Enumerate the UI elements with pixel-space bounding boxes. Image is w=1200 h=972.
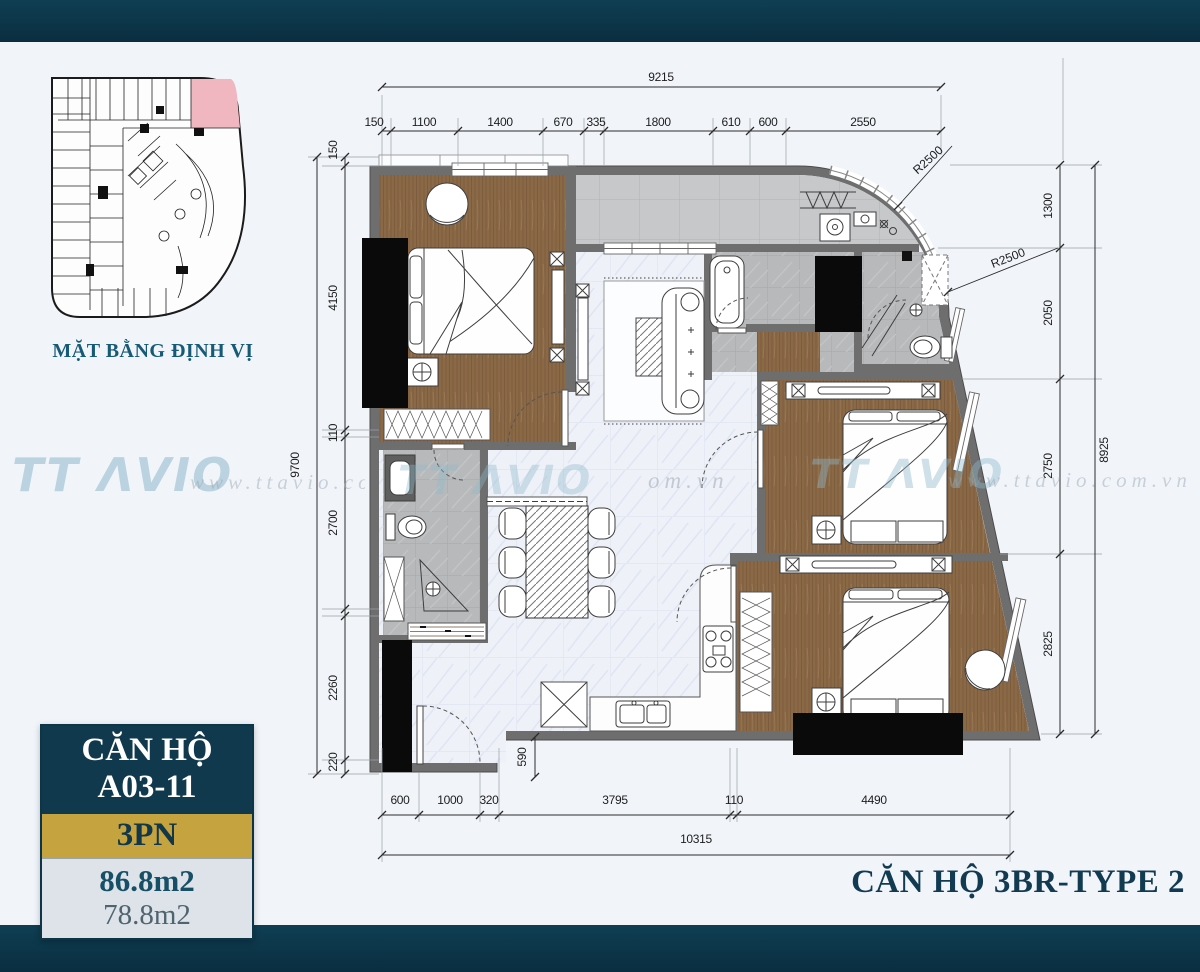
dim-top-total: 9215 xyxy=(648,70,674,84)
dining-table xyxy=(526,506,588,618)
linen-bath2 xyxy=(384,557,404,621)
net-area: 78.8m2 xyxy=(42,899,252,932)
bedroom2-nightstand xyxy=(812,516,841,544)
master-nightstand xyxy=(406,358,438,386)
kitchen-sink xyxy=(616,701,670,727)
master-armchair xyxy=(426,183,468,225)
page-title: CĂN HỘ 3BR-TYPE 2 xyxy=(760,864,1185,901)
dim-left-seg: 220 xyxy=(326,752,340,771)
dim-bottom-seg: 3795 xyxy=(602,793,628,807)
unit-info-box: CĂN HỘ A03-11 3PN 86.8m2 78.8m2 xyxy=(40,724,254,940)
bedroom-count-badge: 3PN xyxy=(42,814,252,857)
dim-top-seg: 335 xyxy=(586,115,605,129)
watermark-url: www.ttavio.com.vn xyxy=(948,468,1188,493)
dim-bottom-seg: 320 xyxy=(479,793,498,807)
toilet-bath2 xyxy=(386,514,426,540)
living-tv-console xyxy=(576,284,589,395)
sofa xyxy=(662,288,704,414)
bedroom3-wardrobe xyxy=(740,592,772,712)
entry-console xyxy=(408,623,486,640)
dim-left-total: 9700 xyxy=(288,452,302,478)
shoe-cabinet xyxy=(541,682,587,727)
dim-top-seg: 150 xyxy=(364,115,383,129)
bedroom3-tv-console xyxy=(780,556,952,573)
dim-left-seg: 150 xyxy=(326,140,340,159)
bedroom3-nightstand xyxy=(812,688,841,716)
dim-top-seg: 670 xyxy=(553,115,572,129)
dim-top-seg: 1400 xyxy=(487,115,513,129)
dim-entry-depth: 590 xyxy=(515,747,529,766)
dim-top-seg: 600 xyxy=(758,115,777,129)
bedroom3-bed xyxy=(843,588,949,722)
linen-closet xyxy=(922,255,948,305)
unit-label: CĂN HỘ xyxy=(42,732,252,769)
dim-top-seg: 1800 xyxy=(645,115,671,129)
bathtub xyxy=(710,256,744,328)
gross-area: 86.8m2 xyxy=(42,863,252,899)
dim-bottom-seg: 1000 xyxy=(437,793,463,807)
washing-machine xyxy=(820,214,850,241)
dim-bottom-seg: 600 xyxy=(390,793,409,807)
unit-code: A03-11 xyxy=(42,769,252,806)
page: MẶT BẰNG ĐỊNH VỊ TT ΛVIO www.ttavio.com.… xyxy=(0,0,1200,972)
master-bed xyxy=(408,248,534,354)
cooktop xyxy=(703,626,733,672)
bedroom2-wardrobe xyxy=(761,381,778,425)
watermark-url: www.ttavio.com.vn xyxy=(190,470,365,495)
dim-left-seg: 2260 xyxy=(326,675,340,701)
dim-bottom-seg: 110 xyxy=(725,793,743,807)
dim-top-seg: 1100 xyxy=(412,115,437,129)
watermark-logo: TT ΛVIO xyxy=(398,458,592,504)
dim-left-seg: 110 xyxy=(326,424,340,442)
dim-bottom-seg: 4490 xyxy=(861,793,887,807)
dim-right-seg: 2825 xyxy=(1041,631,1055,657)
bedroom2-tv-console xyxy=(786,382,940,399)
master-wardrobe xyxy=(384,409,490,440)
dim-bottom-total: 10315 xyxy=(680,832,712,846)
dim-left-seg: 2700 xyxy=(326,510,340,536)
dim-top-seg: 2550 xyxy=(850,115,876,129)
dim-right-total: 8925 xyxy=(1097,437,1111,463)
dim-top-seg: 610 xyxy=(721,115,740,129)
dim-right-seg: 1300 xyxy=(1041,193,1055,219)
toilet-wc2 xyxy=(910,336,952,358)
dim-right-seg: 2750 xyxy=(1041,453,1055,479)
dim-left-seg: 4150 xyxy=(326,285,340,311)
dim-right-seg: 2050 xyxy=(1041,300,1055,326)
watermark-url-fragment: om.vn xyxy=(648,468,729,494)
